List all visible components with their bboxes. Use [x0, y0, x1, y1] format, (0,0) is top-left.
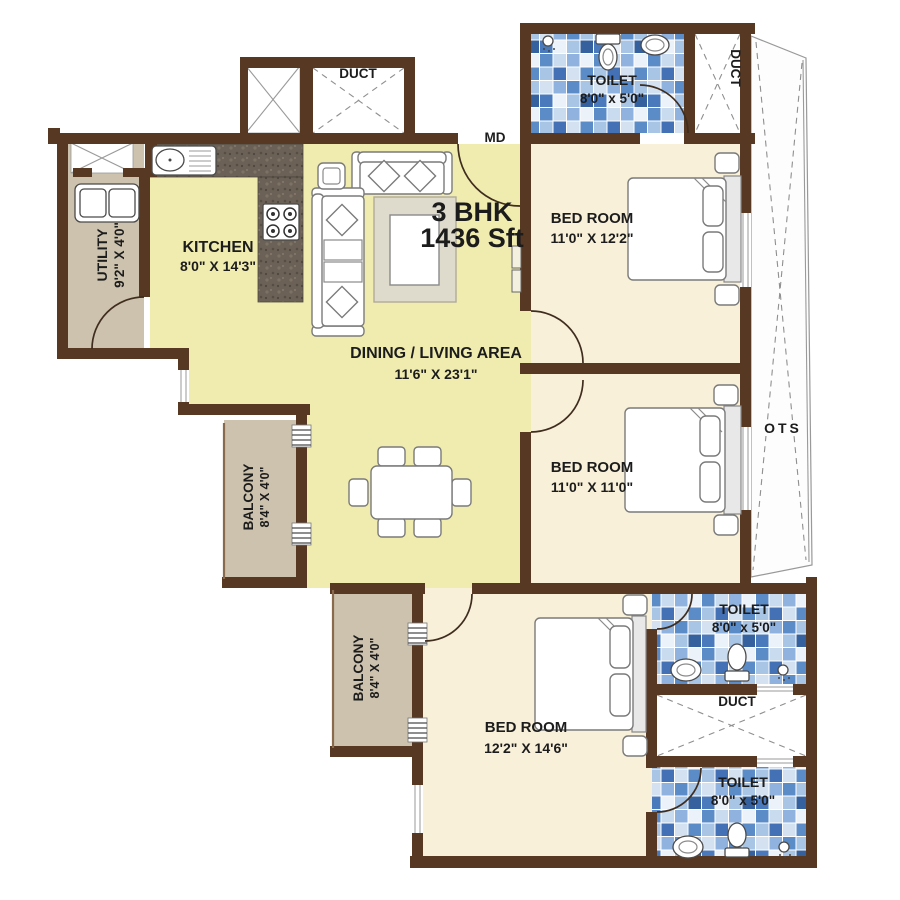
sofa-two-seater [352, 152, 452, 194]
plan-title-line2: 1436 Sft [420, 223, 524, 253]
utility-dims: 9'2" X 4'0" [112, 222, 127, 288]
floor-plan-canvas: 3 BHK 1436 Sft KITCHEN 8'0" X 14'3" UTIL… [0, 0, 900, 900]
sofa-three-seater [312, 188, 364, 336]
bedroom2-dims: 11'0" X 11'0" [551, 479, 633, 495]
slider-balcony2-a [408, 623, 427, 645]
kitchen-sink-icon [152, 146, 216, 175]
washbasin-icon [673, 836, 703, 858]
balcony2-label: BALCONY [351, 635, 366, 702]
balcony2-dims: 8'4" X 4'0" [368, 637, 382, 698]
utility-sink-icon [75, 184, 139, 222]
window-bedroom3 [412, 785, 423, 833]
washbasin-icon [641, 35, 669, 55]
wc-icon [596, 34, 620, 44]
living-dims: 11'6" X 23'1" [395, 366, 478, 382]
ots-label: OTS [764, 420, 802, 436]
kitchen-label: KITCHEN [182, 239, 253, 256]
duct-right-label: DUCT [728, 49, 743, 87]
vent-toilet3 [757, 756, 793, 767]
slider-balcony1-a [292, 425, 311, 447]
balcony1-dims: 8'4" X 4'0" [258, 466, 272, 527]
kitchen-dims: 8'0" X 14'3" [180, 258, 256, 274]
bedroom3-dims: 12'2" X 14'6" [484, 740, 568, 756]
bedroom1-dims: 11'0" X 12'2" [551, 230, 634, 246]
ots-shaft [751, 36, 812, 577]
duct-bottom-label: DUCT [718, 694, 756, 709]
side-table [318, 163, 345, 189]
toilet2-dims: 8'0" x 5'0" [712, 620, 776, 635]
dining-table [371, 466, 452, 519]
bedroom2-label: BED ROOM [551, 459, 634, 476]
window-kitchen [178, 370, 189, 402]
stove-icon [263, 204, 299, 240]
balcony1-label: BALCONY [241, 464, 256, 531]
toilet1-dims: 8'0" x 5'0" [580, 91, 644, 106]
shower-icon [778, 665, 788, 675]
utility-label: UTILITY [94, 228, 110, 282]
vent-toilet2 [757, 684, 793, 695]
slider-balcony2-b [408, 718, 427, 742]
wc-icon [728, 823, 746, 847]
toilet3-dims: 8'0" x 5'0" [711, 793, 775, 808]
bed-2 [625, 385, 741, 535]
toilet2-label: TOILET [719, 601, 769, 617]
wc-icon [728, 644, 746, 670]
slider-balcony1-b [292, 523, 311, 545]
washbasin-icon [671, 659, 701, 681]
duct-top-label: DUCT [339, 66, 377, 81]
bedroom3-label: BED ROOM [485, 719, 568, 736]
floor-plan: 3 BHK 1436 Sft KITCHEN 8'0" X 14'3" UTIL… [0, 0, 900, 900]
shower-icon [779, 842, 789, 852]
window-bedroom1 [740, 213, 751, 287]
toilet1-label: TOILET [587, 72, 637, 88]
bedroom1-label: BED ROOM [551, 210, 634, 227]
window-bedroom2 [740, 427, 751, 510]
main-door-label: MD [485, 130, 506, 145]
toilet3-label: TOILET [718, 774, 768, 790]
shower-icon [543, 36, 553, 46]
living-label: DINING / LIVING AREA [350, 345, 522, 362]
